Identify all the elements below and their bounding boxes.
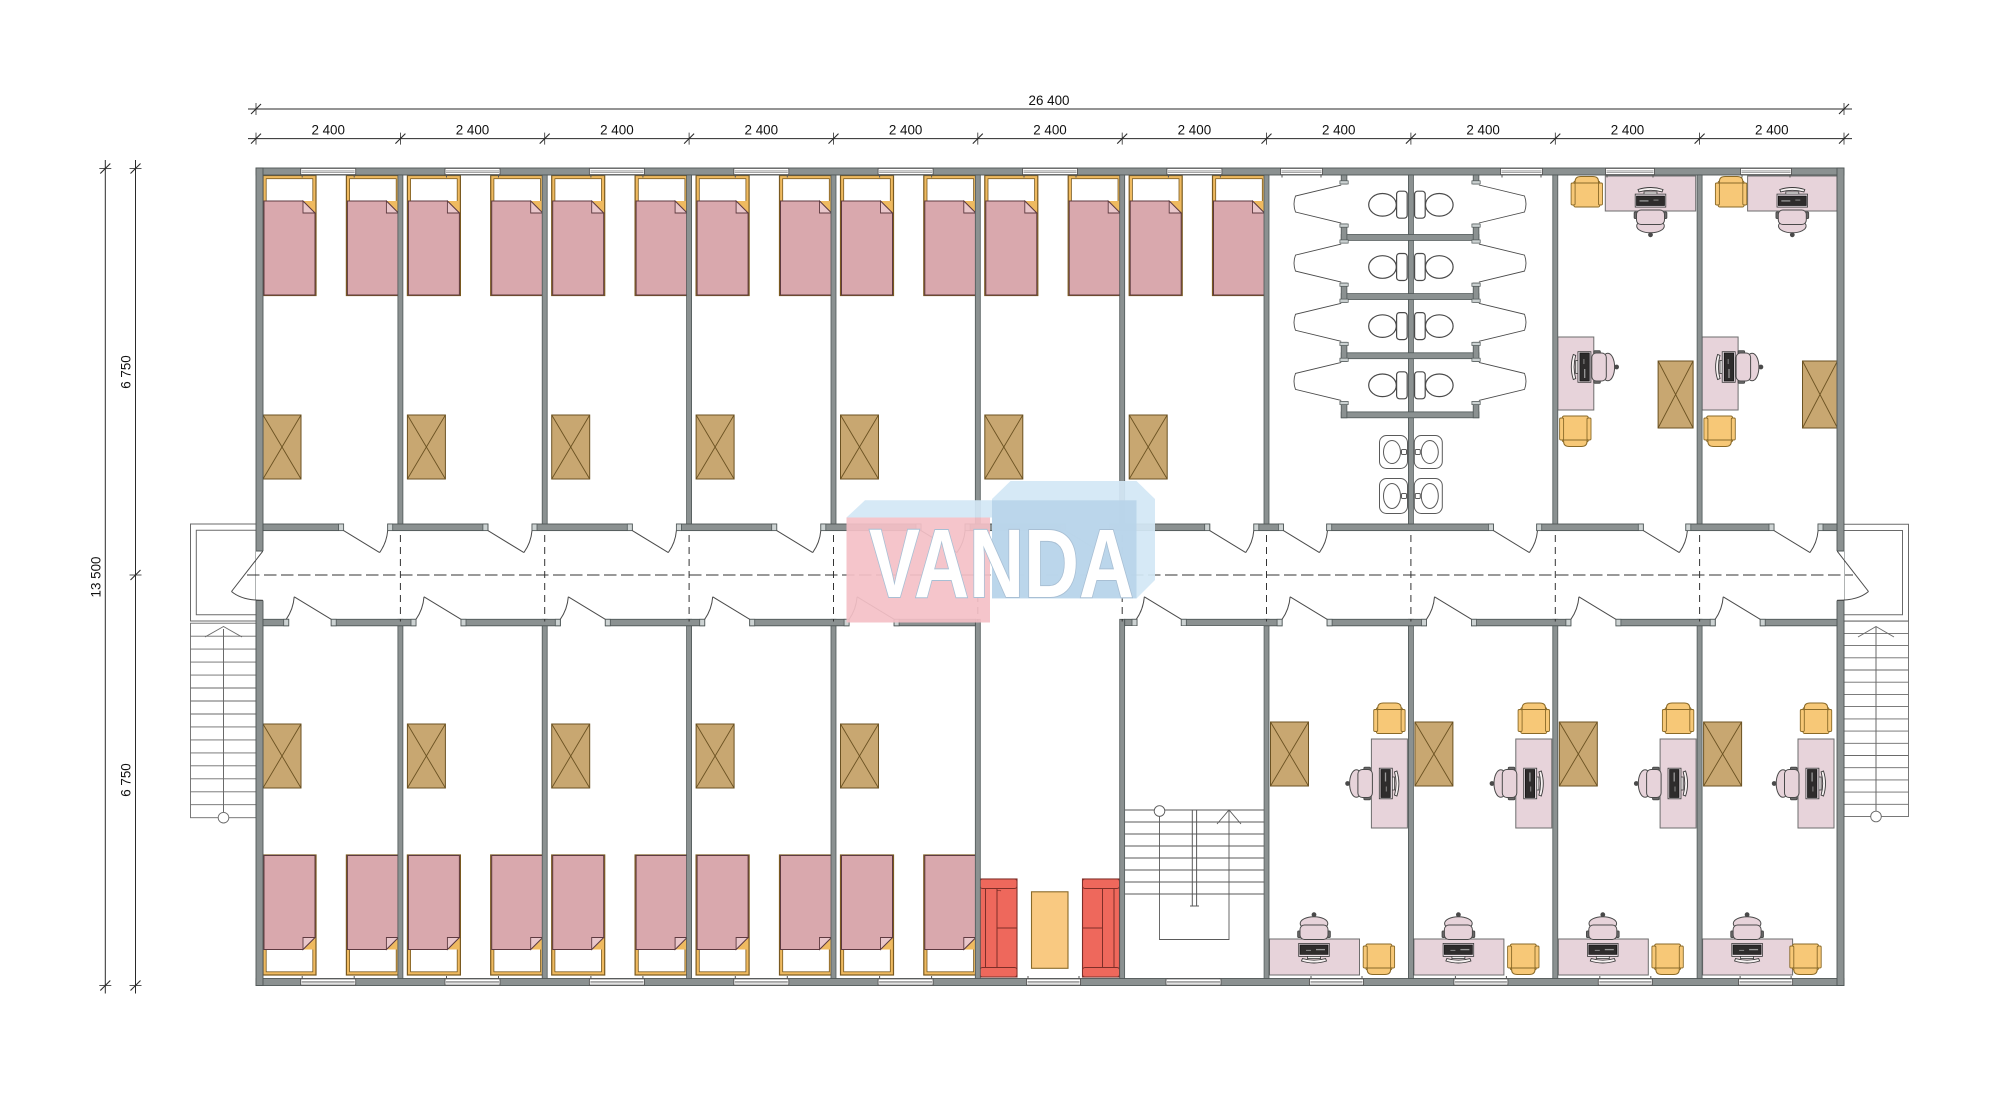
svg-text:VANDA: VANDA [869,509,1134,618]
svg-text:2 400: 2 400 [745,123,779,138]
svg-text:2 400: 2 400 [600,123,634,138]
svg-text:2 400: 2 400 [1322,123,1356,138]
svg-text:2 400: 2 400 [456,123,490,138]
svg-text:6 750: 6 750 [119,355,134,389]
svg-text:26 400: 26 400 [1029,93,1070,108]
svg-text:2 400: 2 400 [311,123,345,138]
svg-text:2 400: 2 400 [1755,123,1789,138]
svg-text:13 500: 13 500 [89,557,104,598]
svg-text:2 400: 2 400 [889,123,923,138]
svg-text:6 750: 6 750 [119,763,134,797]
svg-text:2 400: 2 400 [1178,123,1212,138]
svg-text:2 400: 2 400 [1611,123,1645,138]
svg-text:2 400: 2 400 [1466,123,1500,138]
svg-text:2 400: 2 400 [1033,123,1067,138]
